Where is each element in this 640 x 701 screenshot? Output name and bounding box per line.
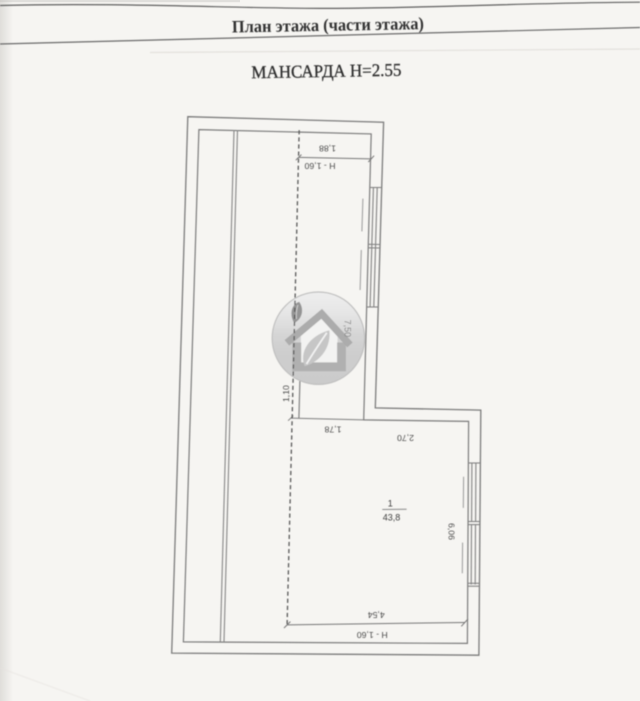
svg-text:4,54: 4,54 bbox=[368, 610, 385, 620]
svg-text:2,70: 2,70 bbox=[397, 433, 414, 443]
svg-text:Н - 1,60: Н - 1,60 bbox=[304, 161, 335, 171]
svg-text:Н - 1,60: Н - 1,60 bbox=[357, 630, 388, 640]
svg-text:План этажа (части этажа): План этажа (части этажа) bbox=[232, 13, 424, 36]
svg-text:1,88: 1,88 bbox=[319, 143, 336, 153]
svg-text:43,8: 43,8 bbox=[383, 513, 401, 523]
svg-text:6,06: 6,06 bbox=[446, 523, 456, 540]
svg-text:1,78: 1,78 bbox=[324, 425, 341, 435]
svg-text:МАНСАРДА Н=2.55: МАНСАРДА Н=2.55 bbox=[251, 60, 401, 83]
svg-text:1: 1 bbox=[388, 499, 393, 509]
svg-text:7,50: 7,50 bbox=[342, 320, 352, 338]
svg-text:1,10: 1,10 bbox=[281, 385, 291, 402]
